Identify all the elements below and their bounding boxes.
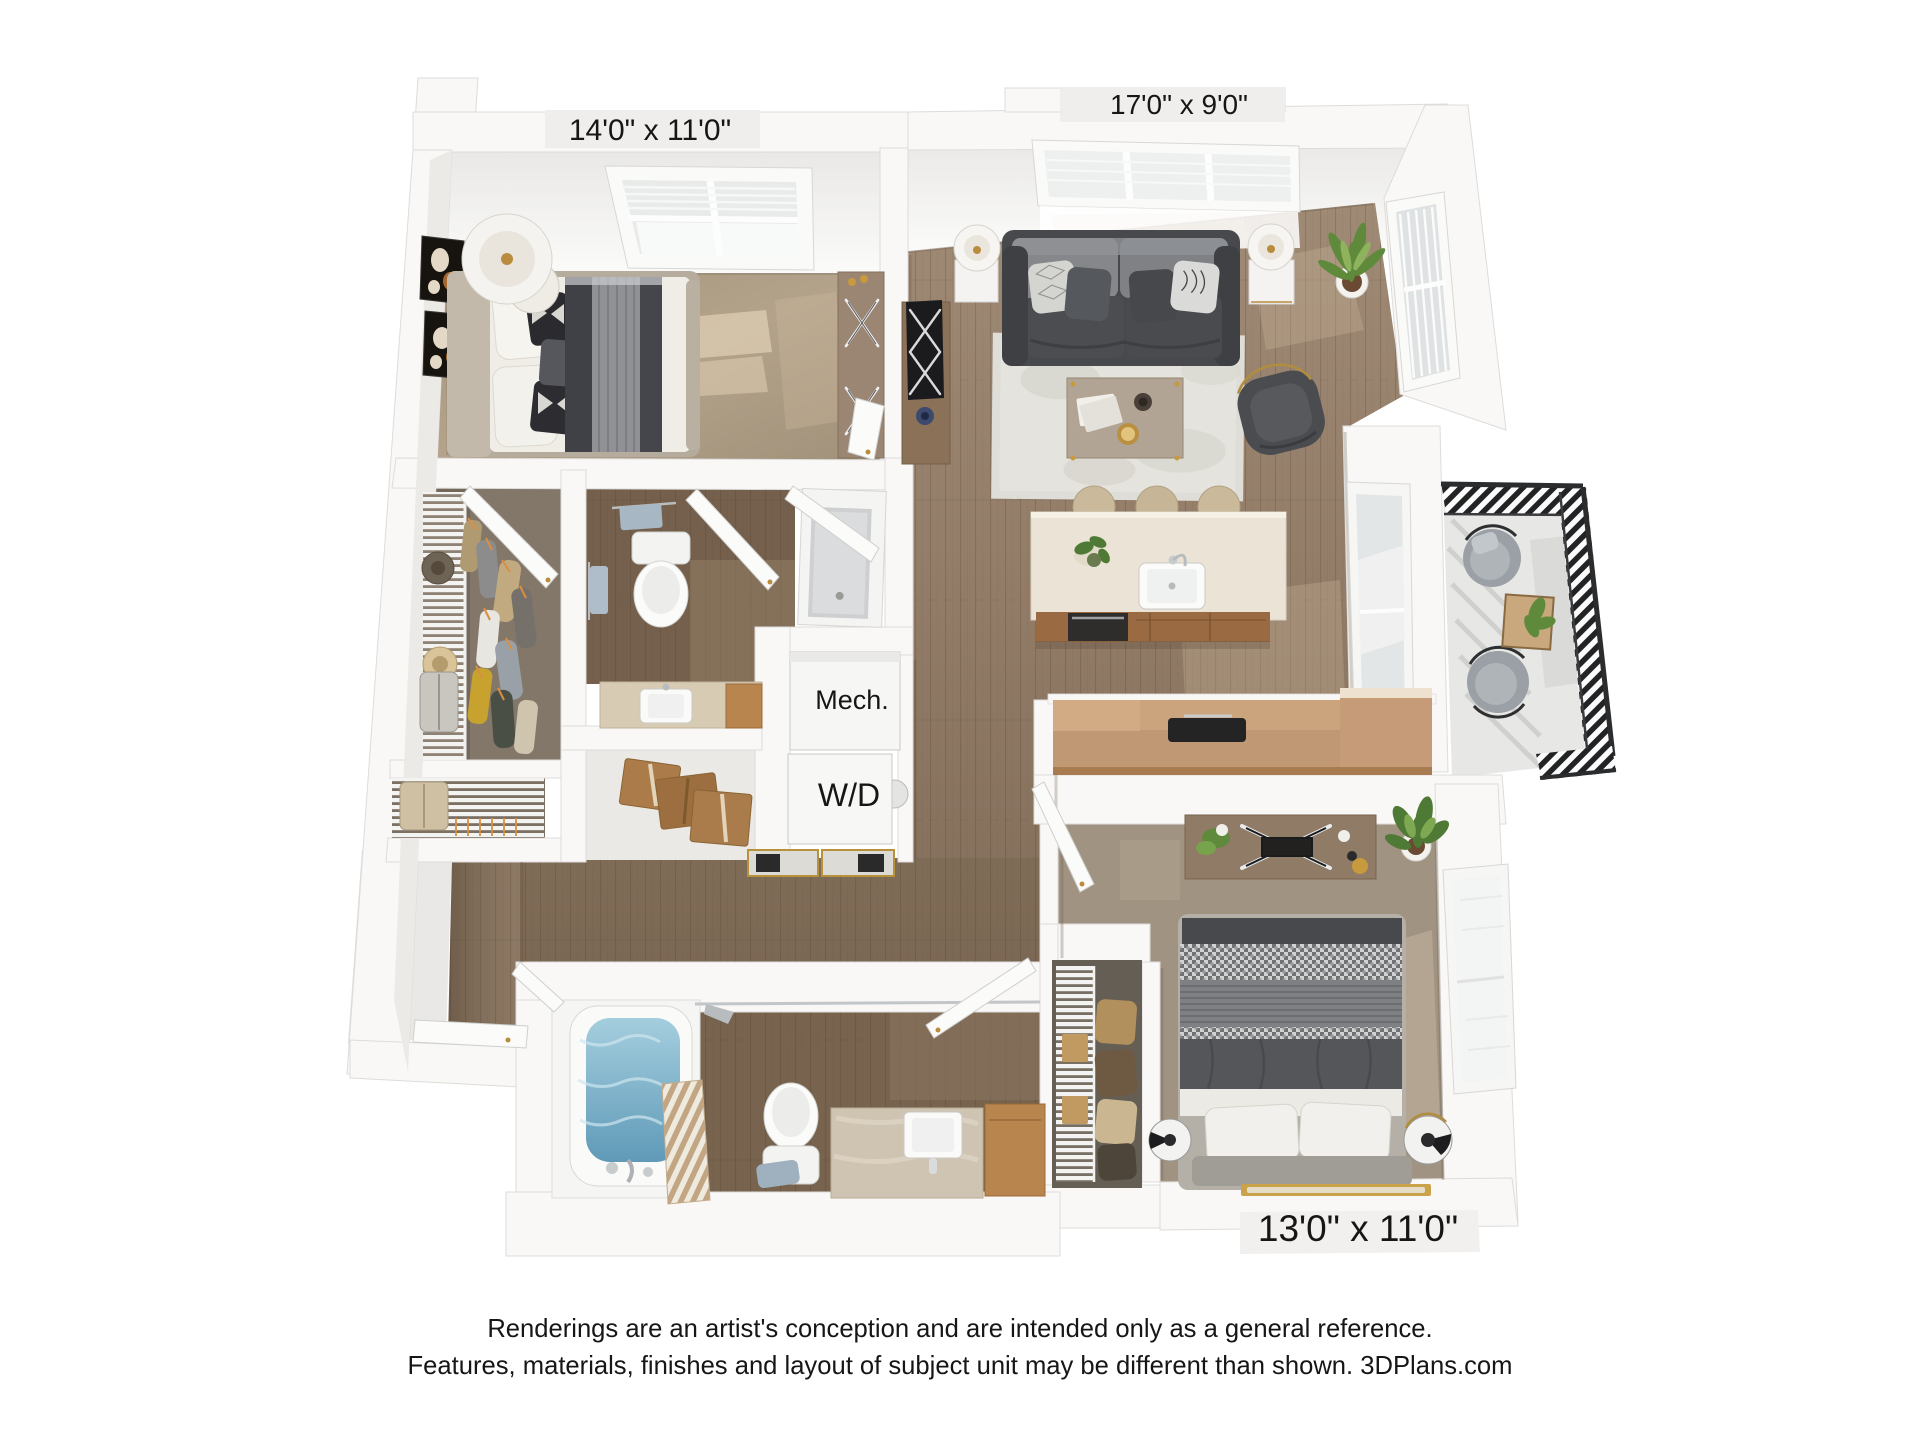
- svg-text:13'0" x 11'0": 13'0" x 11'0": [1258, 1208, 1458, 1249]
- svg-text:W/D: W/D: [818, 777, 880, 813]
- svg-text:Mech.: Mech.: [815, 685, 889, 715]
- svg-text:14'0" x 11'0": 14'0" x 11'0": [569, 114, 731, 147]
- svg-text:Features, materials, finishes: Features, materials, finishes and layout…: [408, 1352, 1513, 1380]
- svg-text:Renderings are an artist's con: Renderings are an artist's conception an…: [487, 1315, 1432, 1343]
- svg-text:17'0" x 9'0": 17'0" x 9'0": [1110, 89, 1248, 120]
